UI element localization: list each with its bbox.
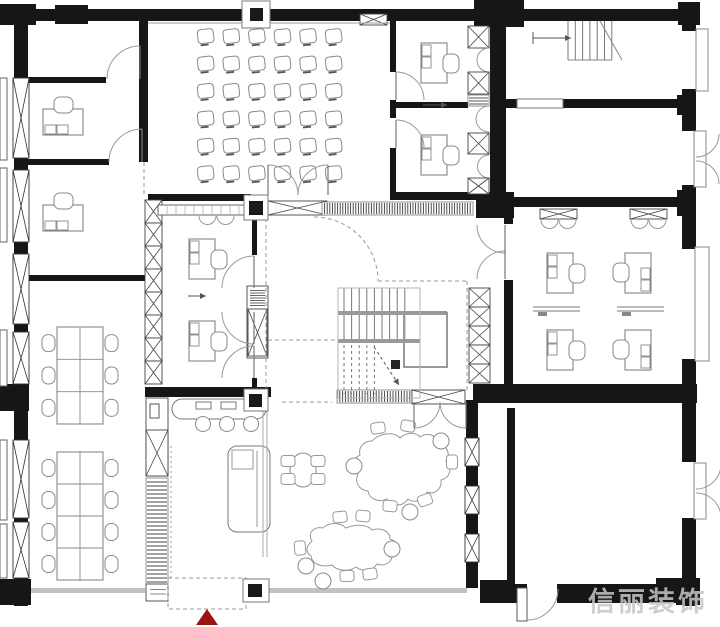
classroom-chair <box>325 138 343 155</box>
door-unit <box>694 131 706 187</box>
window <box>13 254 29 324</box>
classroom-chair <box>325 83 343 100</box>
conference-chair <box>42 335 55 352</box>
office-desk <box>421 43 459 83</box>
stair-treads-hidden <box>344 345 374 394</box>
window-sill <box>696 29 708 91</box>
chair <box>370 422 385 435</box>
closet-x <box>469 326 490 345</box>
classroom-chair <box>197 165 215 182</box>
closet-door <box>477 48 489 72</box>
wardrobe <box>540 209 577 219</box>
chair <box>281 474 295 485</box>
wall-interior <box>252 218 257 255</box>
classroom-chair <box>274 111 292 128</box>
wall-interior <box>148 194 251 201</box>
escape-stair-arrow <box>533 35 571 41</box>
conference-chair <box>42 460 55 477</box>
classroom-chair <box>274 138 292 155</box>
window-outer <box>0 440 7 520</box>
wall-block <box>0 579 31 605</box>
wardrobe-door <box>649 220 666 229</box>
classroom-chair <box>248 138 266 155</box>
classroom-chair <box>197 111 215 128</box>
conference-table <box>42 452 118 580</box>
window-opening <box>681 31 697 89</box>
conference-chair <box>42 367 55 384</box>
classroom-chair <box>325 28 343 45</box>
classroom-chair <box>248 165 266 182</box>
office-desk <box>43 97 83 135</box>
stool <box>298 558 314 574</box>
pass-opening <box>517 99 563 108</box>
window <box>13 332 29 384</box>
door-opening <box>527 584 557 603</box>
counter-tick <box>538 312 547 316</box>
wall-block <box>656 578 698 603</box>
conference-chair <box>105 367 118 384</box>
glass-wall-left <box>28 588 145 593</box>
locker-x <box>146 430 168 476</box>
bookshelf <box>146 478 168 584</box>
chair <box>294 541 306 556</box>
stool <box>384 541 400 557</box>
classroom-chair <box>248 28 266 45</box>
office-desk <box>613 330 651 370</box>
closet <box>145 269 162 292</box>
column <box>248 584 262 597</box>
double-door <box>440 402 466 428</box>
wall-interior <box>390 148 396 194</box>
stair-marker <box>391 360 400 369</box>
organic-table <box>307 524 397 571</box>
classroom-chair <box>299 28 317 45</box>
door <box>396 120 424 148</box>
floor-plan-drawing <box>0 0 720 627</box>
direction-arrow <box>188 293 206 299</box>
window-outer <box>0 330 7 386</box>
classroom-chair <box>248 83 266 100</box>
classroom-chair <box>299 56 317 73</box>
wardrobe <box>630 209 667 219</box>
conference-table <box>42 327 118 424</box>
wardrobe-door <box>631 220 648 229</box>
counter-tick <box>622 312 631 316</box>
stool <box>196 417 211 432</box>
closet <box>145 223 162 246</box>
floor-plan: 信丽装饰 <box>0 0 720 627</box>
closet-x <box>469 345 490 364</box>
wall-interior <box>139 21 148 162</box>
classroom-chair <box>197 28 215 45</box>
classroom-chair <box>248 56 266 73</box>
classroom-chair <box>197 56 215 73</box>
closet-door <box>217 216 234 225</box>
classroom-chair <box>325 56 343 73</box>
vestibule <box>168 578 246 609</box>
window-outer <box>0 168 7 242</box>
conference-chair <box>42 492 55 509</box>
office-desk <box>547 330 585 370</box>
stool <box>433 433 449 449</box>
closet-grille <box>468 95 489 106</box>
closet-x <box>469 307 490 326</box>
chair <box>333 511 348 523</box>
conference-chair <box>105 492 118 509</box>
wall-interior <box>490 21 506 196</box>
chair <box>447 455 458 469</box>
classroom-chair <box>274 28 292 45</box>
window <box>465 438 479 466</box>
shelf <box>158 205 250 215</box>
shaft-grille <box>250 291 265 306</box>
closet <box>145 338 162 361</box>
entrance-mat <box>268 201 327 215</box>
door-unit <box>694 463 706 519</box>
door <box>107 46 140 79</box>
closet <box>145 361 162 384</box>
wall-interior <box>473 384 697 403</box>
sofa <box>228 446 270 532</box>
window-outer <box>0 78 7 160</box>
office-desk <box>613 253 651 293</box>
window <box>13 78 29 158</box>
stool <box>402 504 418 520</box>
classroom-chair <box>223 28 241 45</box>
shelf-end <box>146 584 168 601</box>
wall-interior <box>390 21 396 72</box>
chair <box>356 510 371 522</box>
column <box>250 8 263 21</box>
classroom-chair <box>299 138 317 155</box>
window <box>13 440 29 518</box>
window-sill <box>695 247 709 361</box>
conference-chair <box>105 556 118 573</box>
shaft-x <box>248 309 267 356</box>
closet <box>145 315 162 338</box>
chair <box>311 474 325 485</box>
window <box>465 534 479 562</box>
closet-door <box>478 155 490 178</box>
conference-chair <box>105 524 118 541</box>
closet-x <box>469 288 490 307</box>
entrance-marker <box>196 609 218 625</box>
grille-strip <box>337 390 412 403</box>
office-desk <box>189 239 227 279</box>
office-desk <box>43 193 83 231</box>
chair <box>311 456 325 467</box>
wall-interior <box>28 159 109 165</box>
conference-chair <box>42 399 55 416</box>
glass-wall-lounge <box>246 588 467 593</box>
grille-strip <box>322 202 473 215</box>
wall-interior <box>252 378 257 390</box>
office-desk <box>547 253 585 293</box>
classroom-chair <box>299 83 317 100</box>
classroom-chair <box>325 111 343 128</box>
chair <box>340 570 354 581</box>
stool <box>315 573 331 589</box>
column <box>249 394 262 407</box>
classroom-chairs <box>197 28 343 182</box>
office-desk <box>189 321 227 361</box>
window <box>465 486 479 514</box>
conference-chair <box>105 399 118 416</box>
stair-rail <box>338 339 420 343</box>
closet <box>145 246 162 269</box>
escape-stair-diag <box>600 21 622 60</box>
wardrobe-door <box>541 220 558 228</box>
wall-block <box>0 384 29 411</box>
chair <box>383 500 398 512</box>
closet-door <box>199 216 216 225</box>
stool <box>220 417 235 432</box>
classroom-chair <box>274 56 292 73</box>
classroom-chair <box>197 83 215 100</box>
double-door <box>414 402 440 428</box>
stool <box>244 417 259 432</box>
conference-chair <box>105 335 118 352</box>
wall-interior <box>505 197 683 207</box>
window <box>13 522 29 578</box>
office-desk <box>421 135 459 175</box>
wall-interior <box>507 408 515 588</box>
closet <box>468 72 489 94</box>
window-outer <box>0 524 7 578</box>
dashed-door-swing <box>314 217 378 281</box>
window <box>13 170 29 242</box>
classroom-chair <box>223 111 241 128</box>
classroom-chair <box>197 138 215 155</box>
wall-interior <box>504 280 513 385</box>
wardrobe-door <box>559 220 576 229</box>
classroom-chair <box>274 83 292 100</box>
column <box>249 201 263 215</box>
closet-door <box>476 106 489 132</box>
classroom-chair <box>248 111 266 128</box>
wall-top <box>8 9 697 21</box>
wall-interior <box>28 275 145 281</box>
classroom-chair <box>299 111 317 128</box>
closet <box>145 292 162 315</box>
wall-interior <box>504 218 513 224</box>
wall-interior <box>28 77 106 83</box>
classroom-chair <box>223 165 241 182</box>
classroom-chair <box>223 138 241 155</box>
closet-x <box>469 364 490 383</box>
closet <box>468 178 489 194</box>
escape-stair-treads <box>568 21 612 60</box>
conference-chair <box>42 524 55 541</box>
stool <box>346 458 362 474</box>
classroom-chair <box>223 56 241 73</box>
double-door <box>477 225 505 253</box>
door <box>396 72 424 100</box>
conference-chair <box>42 556 55 573</box>
classroom-chair <box>223 83 241 100</box>
door-leaf <box>517 588 527 621</box>
wall-block <box>55 5 88 24</box>
closet <box>468 26 489 48</box>
door <box>109 129 142 162</box>
chair <box>362 568 377 581</box>
closet <box>468 133 489 154</box>
chair <box>281 456 295 467</box>
double-door <box>477 251 505 279</box>
conference-chair <box>105 460 118 477</box>
